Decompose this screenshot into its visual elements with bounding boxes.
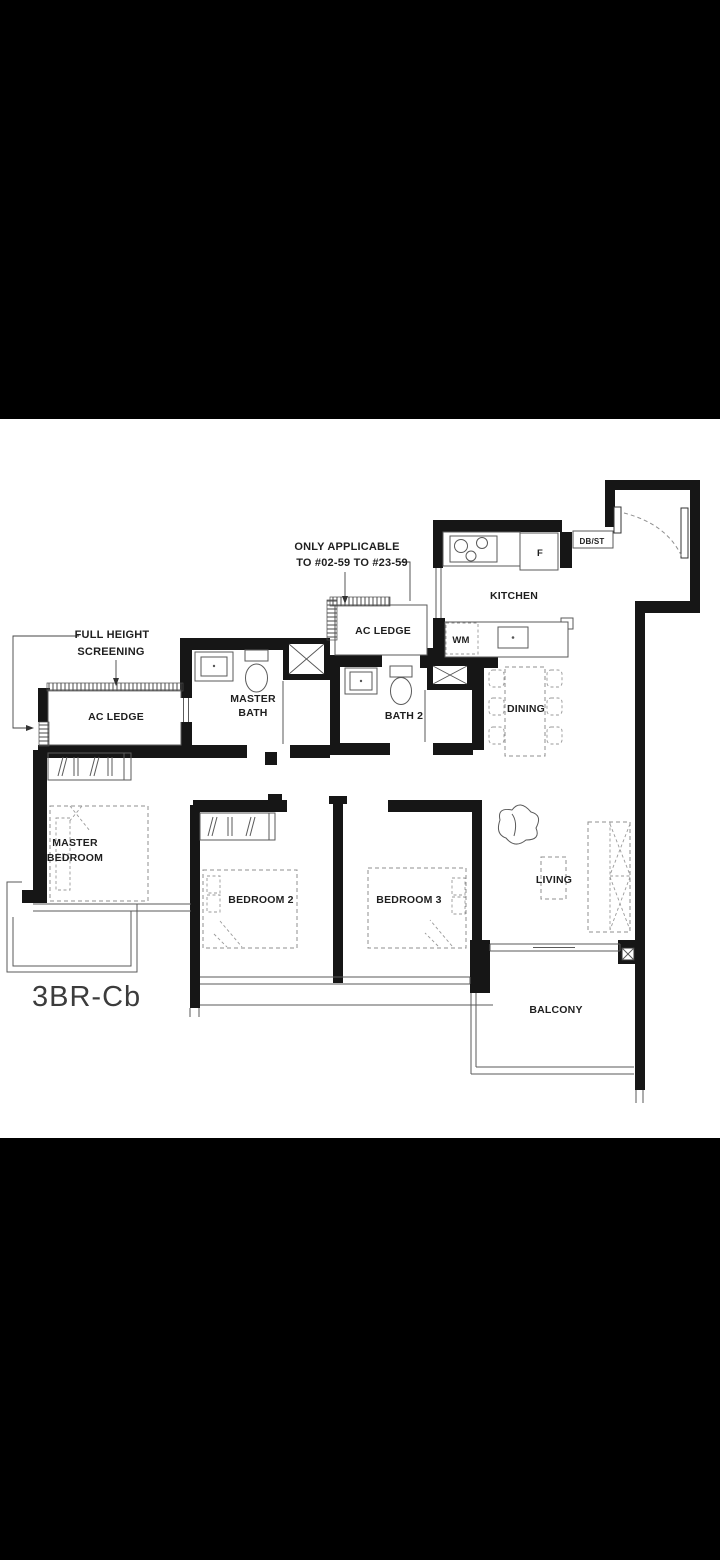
bedroom3-label: BEDROOM 3	[376, 894, 441, 906]
bedroom2-label: BEDROOM 2	[228, 894, 293, 906]
sliding-door	[490, 944, 620, 951]
toilet-icon	[245, 650, 268, 692]
bedroom3-furniture	[368, 868, 466, 948]
balcony-label: BALCONY	[529, 1004, 582, 1016]
wardrobe-icon	[200, 813, 275, 840]
letterbox-top	[0, 0, 720, 421]
sofa-icon	[588, 822, 630, 932]
phone-screenshot: ONLY APPLICABLE TO #02-59 TO #23-59 KITC…	[0, 0, 720, 1560]
screening-note-line1: FULL HEIGHT	[75, 629, 150, 641]
bath2-fixtures	[345, 666, 425, 742]
bed-icon	[368, 868, 466, 948]
sink-icon	[345, 668, 377, 694]
living-label: LIVING	[536, 874, 572, 886]
master-bath-label-line1: MASTER	[230, 693, 276, 705]
unit-type-title: 3BR-Cb	[32, 981, 141, 1013]
letterbox-bottom	[0, 1138, 720, 1560]
master-bath-label-line2: BATH	[238, 707, 267, 719]
fridge-label: F	[537, 548, 543, 559]
db-st-label: DB/ST	[580, 537, 605, 546]
ac-ledge-left-label: AC LEDGE	[88, 711, 144, 723]
master-bedroom-label-line2: BEDROOM	[47, 852, 103, 864]
toilet-icon	[390, 666, 412, 705]
screening-note-line2: SCREENING	[77, 646, 144, 658]
floorplan-drawing: ONLY APPLICABLE TO #02-59 TO #23-59 KITC…	[0, 419, 720, 1138]
washing-machine-label: WM	[452, 635, 469, 646]
kitchen-label: KITCHEN	[490, 590, 538, 602]
balcony-elements	[471, 944, 643, 1103]
dining-label: DINING	[507, 703, 545, 715]
master-bedroom-label-line1: MASTER	[52, 837, 98, 849]
sink-icon	[195, 652, 233, 681]
bed-icon	[203, 870, 297, 948]
bath2-label: BATH 2	[385, 710, 423, 722]
bedroom2-furniture	[200, 813, 297, 948]
plant-icon	[498, 805, 538, 844]
ac-ledge-kitchen-label: AC LEDGE	[355, 625, 411, 637]
entry-door	[614, 507, 688, 558]
unit-note-line2: TO #02-59 TO #23-59	[296, 557, 408, 569]
living-furniture	[498, 805, 630, 932]
floorplan-canvas: ONLY APPLICABLE TO #02-59 TO #23-59 KITC…	[0, 419, 720, 1138]
unit-note-line1: ONLY APPLICABLE	[294, 541, 399, 553]
